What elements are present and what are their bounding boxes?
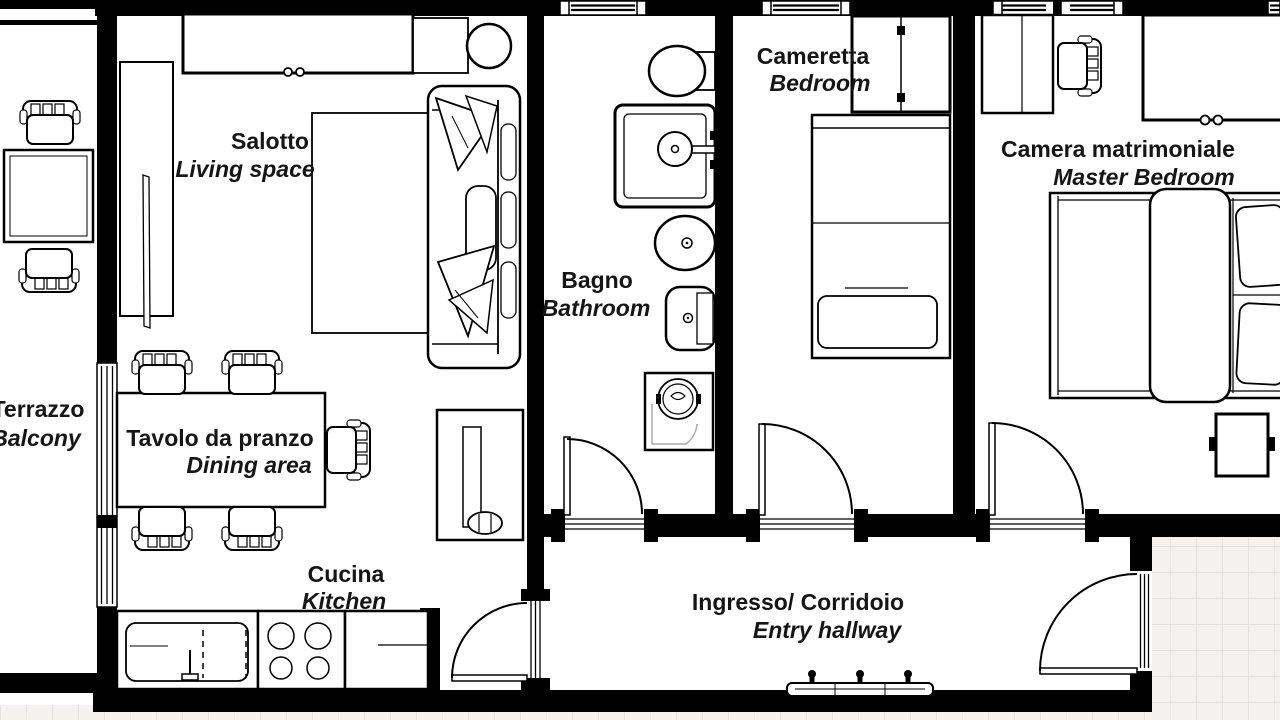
label-cameretta: Cameretta Bedroom <box>757 43 871 96</box>
room-label-en: Entry hallway <box>753 617 902 643</box>
dining-chair <box>327 420 370 480</box>
desk <box>437 410 523 540</box>
room-label-it: Cameretta <box>757 43 870 69</box>
balcony-chair <box>20 101 80 144</box>
room-label-en: Bedroom <box>770 70 871 96</box>
label-cucina: Cucina Kitchen <box>302 561 386 614</box>
washing-machine <box>645 373 713 450</box>
side-table-lamp <box>413 18 511 73</box>
room-label-it: Ingresso/ Corridoio <box>692 589 904 615</box>
floor-plan: Terrazzo Balcony Salotto Living space Ta… <box>0 0 1280 720</box>
master-bedroom-double-window <box>993 0 1123 16</box>
room-label-it: Bagno <box>561 267 633 293</box>
room-label-it: Cucina <box>308 561 385 587</box>
room-label-en: Balcony <box>0 425 82 451</box>
balcony-chair <box>19 249 79 292</box>
edge-window-sliver <box>1268 1 1280 15</box>
master-bedroom-door <box>976 423 1099 542</box>
kitchen-sink-unit <box>117 611 258 689</box>
label-terrazzo: Terrazzo Balcony <box>0 396 84 451</box>
bathroom-door <box>551 437 658 542</box>
bedroom-door <box>746 424 868 542</box>
floor-plan-page: Terrazzo Balcony Salotto Living space Ta… <box>0 0 1280 720</box>
master-desk-chair <box>1058 36 1101 96</box>
master-wardrobe <box>1143 15 1280 125</box>
bidet <box>655 216 715 270</box>
label-camera-matrimoniale: Camera matrimoniale Master Bedroom <box>1001 136 1235 190</box>
cooktop <box>258 611 345 689</box>
master-desk <box>982 15 1053 113</box>
balcony-window <box>97 363 117 607</box>
shoe-rack <box>787 670 933 696</box>
balcony-table <box>4 150 93 242</box>
toilet <box>649 46 715 96</box>
bathroom-sink <box>666 287 715 350</box>
bathroom-window <box>560 1 646 15</box>
room-label-it: Camera matrimoniale <box>1001 136 1235 162</box>
room-label-en: Living space <box>175 156 315 182</box>
room-label-it: Salotto <box>231 128 309 154</box>
sofa <box>428 86 520 368</box>
room-label-en: Bathroom <box>542 295 651 321</box>
kitchen-counter <box>345 611 428 689</box>
balcony-sliding-panel <box>120 62 173 328</box>
chaise <box>312 113 428 333</box>
room-label-en: Kitchen <box>302 588 386 614</box>
label-ingresso: Ingresso/ Corridoio Entry hallway <box>692 589 904 643</box>
nightstand <box>1209 414 1275 476</box>
label-salotto: Salotto Living space <box>175 128 315 182</box>
tv-sideboard <box>183 14 413 76</box>
room-label-it: Terrazzo <box>0 396 84 422</box>
double-bed <box>1050 189 1280 402</box>
dining-chair <box>132 507 192 550</box>
kitchen-hall-door <box>452 589 550 690</box>
bedroom-window <box>762 1 850 15</box>
room-label-en: Master Bedroom <box>1053 164 1234 190</box>
dining-chair <box>132 351 192 394</box>
entry-door <box>1040 571 1152 674</box>
room-label-it: Tavolo da pranzo <box>126 425 313 451</box>
shower <box>615 105 716 207</box>
label-bagno: Bagno Bathroom <box>542 267 651 321</box>
room-label-en: Dining area <box>186 452 311 478</box>
dining-chair <box>222 351 282 394</box>
dining-chair <box>222 507 282 550</box>
single-bed <box>812 115 950 358</box>
